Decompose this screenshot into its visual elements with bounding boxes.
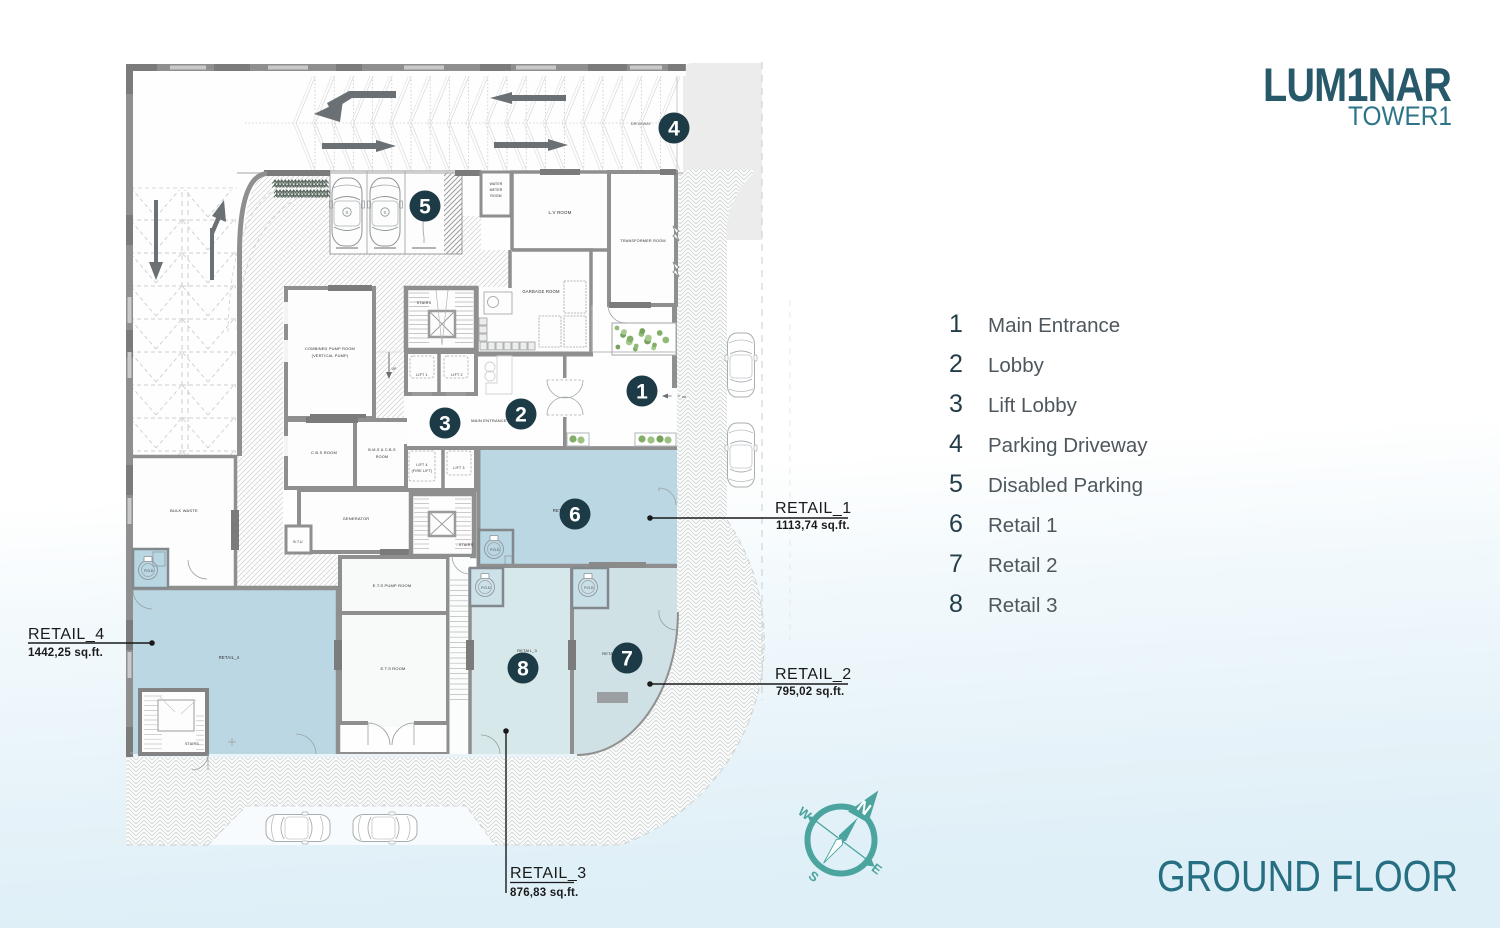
svg-text:TOWER1: TOWER1 (1348, 101, 1452, 131)
svg-text:LIFT 1: LIFT 1 (416, 373, 428, 377)
svg-text:UP: UP (682, 395, 687, 399)
svg-text:LIFT 4: LIFT 4 (416, 463, 427, 467)
svg-text:Retail 1: Retail 1 (988, 514, 1058, 537)
svg-text:P.O.D: P.O.D (144, 569, 154, 573)
svg-text:876,83 sq.ft.: 876,83 sq.ft. (510, 887, 578, 899)
svg-text:- STAIRS: - STAIRS (456, 543, 474, 547)
svg-text:RETAIL_1: RETAIL_1 (775, 500, 852, 517)
svg-text:7: 7 (949, 550, 963, 578)
svg-text:ROOM: ROOM (490, 194, 501, 198)
svg-text:RETAIL_3: RETAIL_3 (517, 648, 537, 653)
svg-text:Main Entrance: Main Entrance (988, 314, 1120, 337)
svg-text:B.T.U: B.T.U (293, 540, 303, 544)
svg-text:METER: METER (490, 188, 503, 192)
svg-text:UP: UP (392, 367, 397, 371)
svg-text:L.V ROOM: L.V ROOM (548, 210, 571, 215)
svg-text:STAIRS: STAIRS (417, 301, 432, 305)
svg-text:Parking Driveway: Parking Driveway (988, 434, 1148, 457)
svg-text:GARBAGE ROOM: GARBAGE ROOM (522, 289, 560, 294)
svg-text:Disabled Parking: Disabled Parking (988, 474, 1143, 497)
svg-text:(FIRE LIFT): (FIRE LIFT) (412, 469, 433, 473)
svg-text:DRIVEWAY: DRIVEWAY (631, 122, 652, 126)
svg-text:B.M.S & C.B.S: B.M.S & C.B.S (368, 448, 396, 452)
svg-text:1: 1 (949, 310, 963, 338)
svg-text:STAIRS: STAIRS (185, 742, 199, 746)
svg-text:MAIN ENTRANCE: MAIN ENTRANCE (471, 418, 507, 423)
svg-text:P.O.D: P.O.D (490, 548, 500, 552)
svg-text:3: 3 (439, 412, 451, 435)
svg-text:C.B.S ROOM: C.B.S ROOM (311, 450, 337, 455)
svg-text:RETAIL_4: RETAIL_4 (219, 655, 240, 660)
svg-text:3: 3 (949, 390, 963, 418)
svg-text:RETAIL_4: RETAIL_4 (28, 626, 105, 643)
svg-text:2: 2 (949, 350, 963, 378)
svg-text:GROUND FLOOR: GROUND FLOOR (1157, 852, 1458, 901)
svg-text:P.O.D: P.O.D (481, 586, 491, 590)
svg-text:RETAIL_3: RETAIL_3 (510, 865, 587, 882)
svg-text:2: 2 (515, 403, 527, 426)
svg-text:4: 4 (668, 117, 680, 140)
svg-text:WATER: WATER (490, 182, 503, 186)
svg-text:6: 6 (569, 503, 581, 526)
svg-text:5: 5 (949, 470, 963, 498)
svg-text:1113,74 sq.ft.: 1113,74 sq.ft. (776, 520, 850, 532)
svg-text:1442,25 sq.ft.: 1442,25 sq.ft. (28, 647, 103, 659)
svg-text:Lobby: Lobby (988, 354, 1045, 377)
svg-text:LIFT 3: LIFT 3 (453, 466, 464, 470)
svg-text:LIFT 2: LIFT 2 (451, 373, 463, 377)
svg-text:E.T.S PUMP ROOM: E.T.S PUMP ROOM (373, 583, 412, 588)
svg-text:Lift Lobby: Lift Lobby (988, 394, 1078, 417)
svg-text:4: 4 (949, 430, 963, 458)
svg-text:COMBINED PUMP ROOM: COMBINED PUMP ROOM (305, 346, 355, 351)
svg-text:E.T.S ROOM: E.T.S ROOM (380, 666, 405, 671)
svg-text:8: 8 (949, 590, 963, 618)
svg-text:(VERTICAL PUMP): (VERTICAL PUMP) (312, 353, 349, 358)
svg-text:1: 1 (636, 380, 648, 403)
svg-text:7: 7 (621, 647, 633, 670)
svg-text:Retail 2: Retail 2 (988, 554, 1058, 577)
svg-text:5: 5 (419, 195, 431, 218)
svg-text:P.O.D: P.O.D (584, 586, 594, 590)
svg-text:795,02 sq.ft.: 795,02 sq.ft. (776, 686, 844, 698)
svg-text:Retail 3: Retail 3 (988, 594, 1058, 617)
svg-text:6: 6 (949, 510, 963, 538)
svg-text:ROOM: ROOM (376, 455, 389, 459)
svg-text:GENERATOR: GENERATOR (343, 516, 370, 521)
svg-text:8: 8 (517, 657, 529, 680)
svg-text:BULK WASTE: BULK WASTE (170, 508, 198, 513)
svg-text:RETAIL_2: RETAIL_2 (775, 666, 852, 683)
svg-text:TRANSFORMER ROOM: TRANSFORMER ROOM (620, 239, 665, 243)
